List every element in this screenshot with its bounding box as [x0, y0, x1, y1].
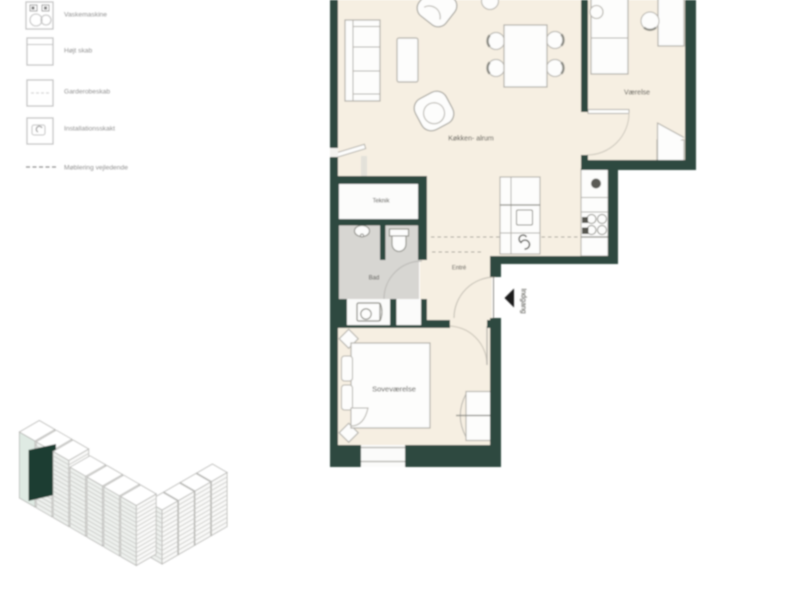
svg-text:Entré: Entré [452, 266, 467, 272]
svg-text:Garderobeskab: Garderobeskab [64, 88, 110, 95]
svg-text:Møblering vejledende: Møblering vejledende [64, 164, 128, 171]
svg-text:Bad: Bad [369, 276, 380, 282]
svg-text:Installationsskakt: Installationsskakt [64, 125, 115, 132]
svg-text:Køkken- alrum: Køkken- alrum [448, 136, 494, 143]
svg-text:Teknik: Teknik [372, 199, 390, 205]
svg-text:Vaskemaskine: Vaskemaskine [64, 11, 107, 18]
svg-text:Værelse: Værelse [624, 90, 650, 97]
svg-text:Indgang: Indgang [520, 288, 527, 313]
svg-text:Højt skab: Højt skab [64, 47, 93, 54]
svg-text:Soveværelse: Soveværelse [372, 385, 416, 394]
